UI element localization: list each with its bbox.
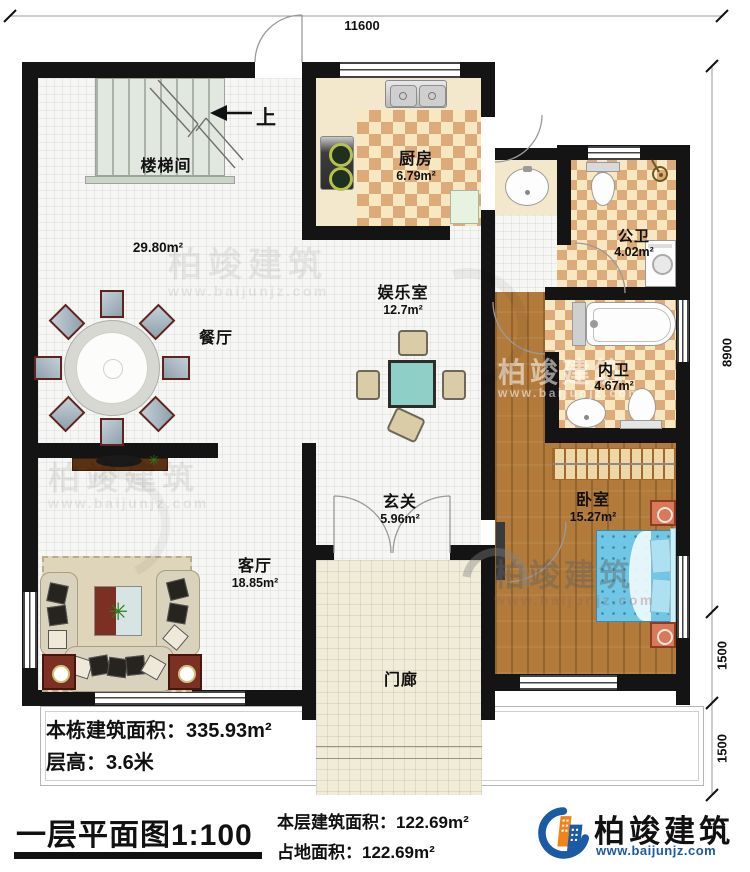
annotation-line2-value: 3.6米 xyxy=(106,752,154,774)
hall-area-label: 29.80m² xyxy=(110,240,206,256)
room-label-stairwell: 楼梯间 xyxy=(118,158,214,176)
pillow xyxy=(650,578,672,613)
wall-segment xyxy=(545,287,676,300)
wall-segment xyxy=(545,352,559,430)
wall-segment xyxy=(545,428,676,443)
wall-segment xyxy=(481,62,495,117)
room-label-inner-bath: 内卫 4.67m² xyxy=(576,362,652,394)
dining-chair xyxy=(100,290,124,318)
wall-segment xyxy=(316,545,334,560)
plan-title: 一层平面图1:100 xyxy=(16,810,253,854)
room-label-entertainment: 娱乐室 12.7m² xyxy=(360,285,446,318)
stove xyxy=(320,136,354,190)
plan-title-underline xyxy=(14,852,262,859)
bathtub xyxy=(586,302,676,346)
sink-drain xyxy=(428,92,436,100)
annotation-line1-label: 本栋建筑面积： xyxy=(46,720,186,742)
pillow xyxy=(650,538,672,573)
dining-chair xyxy=(34,356,62,380)
window xyxy=(520,675,617,690)
burner xyxy=(329,143,353,167)
coffee-table: ✳ xyxy=(94,586,142,636)
room-label-porch: 门廊 xyxy=(358,672,444,690)
sofa-pillow xyxy=(166,602,188,624)
dining-table xyxy=(64,320,160,416)
toilet xyxy=(586,162,620,172)
dim-top: 11600 xyxy=(330,18,394,33)
annotation-line2-label: 层高： xyxy=(46,752,106,774)
sofa-pillow xyxy=(47,605,68,626)
plant-icon: ✳ xyxy=(108,598,128,627)
nightstand xyxy=(650,500,676,526)
brand-logo-icon xyxy=(538,804,592,862)
bed-sheet xyxy=(629,531,651,621)
wall-segment xyxy=(557,160,571,245)
stair-direction-label: 上 xyxy=(256,101,276,130)
basin-drain xyxy=(525,190,530,195)
wall-segment xyxy=(302,62,342,78)
footer-area-line2: 占地面积：122.69m² xyxy=(277,838,435,863)
kitchen-sink xyxy=(385,80,447,108)
footer-line1-label: 本层建筑面积： xyxy=(277,813,396,832)
room-label-living: 客厅 18.85m² xyxy=(212,558,298,591)
wall-segment xyxy=(22,62,255,78)
porch-step xyxy=(316,746,482,747)
room-label-dining: 餐厅 xyxy=(178,330,254,348)
tv xyxy=(96,455,142,467)
window xyxy=(588,146,640,160)
footer-line2-label: 占地面积： xyxy=(277,843,362,862)
wardrobe xyxy=(552,448,676,480)
window xyxy=(677,300,689,362)
annotation-line1-value: 335.93m² xyxy=(186,720,272,742)
nightstand xyxy=(650,622,676,648)
wall-segment xyxy=(302,226,450,240)
window xyxy=(677,556,689,638)
sofa-pillow xyxy=(46,582,69,605)
toilet-base xyxy=(620,420,662,429)
tub-panel xyxy=(572,302,586,346)
annotation-line2: 层高：3.6米 xyxy=(46,746,154,775)
dining-chair xyxy=(100,418,124,446)
end-table xyxy=(168,654,202,690)
washbasin xyxy=(505,168,549,206)
window xyxy=(340,62,460,78)
footer-area-line1: 本层建筑面积：122.69m² xyxy=(277,808,469,833)
room-label-bedroom: 卧室 15.27m² xyxy=(550,492,636,525)
wall-segment xyxy=(302,443,316,720)
kitchen-cabinet xyxy=(450,190,479,224)
brand-website: www.baijunjz.com xyxy=(596,843,716,858)
porch-step xyxy=(316,758,482,759)
wall-segment xyxy=(302,78,316,240)
dining-chair xyxy=(162,356,190,380)
room-label-public-bath: 公卫 4.02m² xyxy=(596,228,672,260)
window xyxy=(95,691,245,705)
annotation-line1: 本栋建筑面积：335.93m² xyxy=(46,714,272,743)
footer-line2-value: 122.69m² xyxy=(362,843,435,862)
room-label-kitchen: 厨房 6.79m² xyxy=(378,151,454,184)
sink-drain xyxy=(399,92,407,100)
footer-line1-value: 122.69m² xyxy=(396,813,469,832)
basin-faucet xyxy=(523,166,532,172)
dim-right-total: 8900 xyxy=(720,331,735,375)
dim-right-mid: 1500 xyxy=(715,634,730,678)
tub-faucet xyxy=(590,320,598,328)
headboard xyxy=(670,528,676,624)
end-table xyxy=(42,654,76,690)
stair-landing xyxy=(85,176,235,184)
burner xyxy=(329,167,353,191)
game-chair xyxy=(356,370,380,400)
room-label-foyer: 玄关 5.96m² xyxy=(360,494,440,527)
window xyxy=(23,592,37,668)
dim-right-bottom: 1500 xyxy=(715,727,730,771)
shower-head-icon xyxy=(652,166,668,182)
washbasin xyxy=(566,398,606,428)
floor-plan: ✳ ✳ xyxy=(0,0,750,872)
sofa-pillow xyxy=(48,630,67,649)
plant-icon: ✳ xyxy=(148,452,160,469)
bed xyxy=(596,530,676,622)
